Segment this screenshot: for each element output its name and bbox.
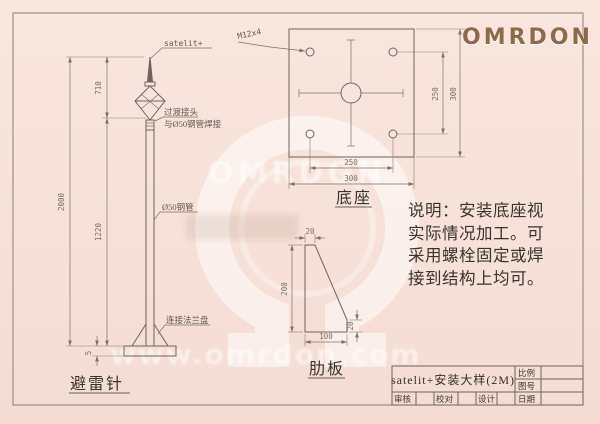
note-line: 采用螺栓固定或焊 (408, 245, 573, 268)
designer-label: 设计 (478, 394, 496, 404)
bolt-hole-callout: M12x4 (237, 27, 305, 51)
scale-label: 比例 (518, 368, 535, 378)
joint-callout-line1: 过渡接头 (164, 107, 199, 117)
rod-threaded-neck (146, 120, 154, 130)
rib-plate-title: 肋板 (309, 360, 345, 378)
reviewer-label: 审核 (394, 394, 412, 404)
date-label: 日期 (518, 394, 535, 404)
note-line: 接到结构上均可。 (408, 268, 573, 291)
dim-rib-height: 200 (280, 282, 289, 296)
base-plate-center-hole (341, 83, 361, 103)
joint-callout-line2: 与Ø50钢管焊接 (164, 119, 222, 129)
rib-plate-outline (305, 245, 347, 332)
bolt-hole-label: M12x4 (237, 27, 263, 41)
rod-dimensions: 2000 710 1220 5 (57, 57, 146, 366)
rod-ornament (135, 86, 165, 120)
base-plate-dimensions: 250 300 250 300 (289, 29, 465, 189)
dim-flange-plate-thickness: 5 (84, 351, 93, 356)
dim-hole-spacing-vertical: 250 (431, 87, 440, 101)
rib-plate-view: 20 200 100 20 肋板 (280, 227, 362, 378)
flange-callout-label: 连接法兰盘 (166, 315, 209, 325)
dim-upper-section: 710 (94, 81, 103, 95)
lightning-rod-view: 2000 710 1220 5 satelit+ 过渡接头 与Ø50钢管焊接 Ø… (57, 39, 222, 393)
brand-logo: OMRDON (462, 25, 580, 50)
dim-total-height: 2000 (57, 192, 66, 211)
dim-rib-top-width: 20 (305, 227, 315, 236)
installation-note: 说明：安装底座视 实际情况加工。可 采用螺栓固定或焊 接到结构上均可。 (408, 200, 573, 290)
pipe-callout-label: Ø50钢管 (162, 202, 194, 212)
dim-rib-right-height: 20 (346, 321, 355, 331)
base-plate-view: M12x4 250 300 250 300 底座 (237, 27, 465, 207)
tip-callout-label: satelit+ (164, 39, 203, 48)
base-plate-center-cross (299, 40, 403, 146)
dim-hole-spacing-horizontal: 250 (344, 158, 358, 167)
rib-plate-dimensions: 20 200 100 20 (280, 227, 362, 346)
base-plate-title: 底座 (336, 189, 372, 207)
note-line: 说明：安装底座视 (408, 200, 573, 223)
rod-pipe (146, 130, 154, 346)
checker-label: 校对 (436, 394, 454, 404)
rod-callouts: satelit+ 过渡接头 与Ø50钢管焊接 Ø50钢管 连接法兰盘 (151, 39, 222, 334)
lightning-rod-title: 避雷针 (70, 375, 124, 393)
title-block: satelit+安装大样(2M) 比例 图号 日期 审核 校对 设计 (391, 366, 583, 405)
dim-lower-section: 1220 (94, 222, 103, 241)
rod-flange (124, 324, 176, 356)
rod-needle-tip (148, 57, 153, 82)
drawing-sheet: { "colors": { "background": "#f7e1d9", "… (0, 0, 600, 424)
dim-plate-side-horizontal: 300 (344, 174, 358, 183)
dim-plate-side-vertical: 300 (449, 87, 458, 101)
note-line: 实际情况加工。可 (408, 223, 573, 246)
drawing-title: satelit+安装大样(2M) (391, 372, 515, 387)
drawing-no-label: 图号 (518, 381, 535, 391)
dim-rib-bottom-width: 100 (319, 332, 333, 341)
